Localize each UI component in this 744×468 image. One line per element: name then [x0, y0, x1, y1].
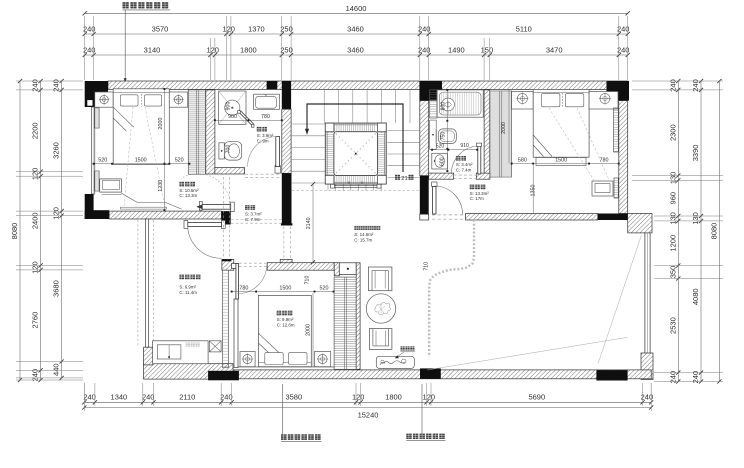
svg-text:2200: 2200	[31, 122, 40, 139]
svg-text:2110: 2110	[179, 393, 195, 402]
svg-text:3390: 3390	[691, 145, 700, 162]
svg-text:4080: 4080	[691, 288, 700, 305]
svg-text:2400: 2400	[31, 212, 40, 229]
svg-text:S: 9.9m²: S: 9.9m²	[277, 317, 294, 322]
svg-text:1200: 1200	[668, 235, 677, 252]
svg-text:350: 350	[668, 266, 677, 279]
svg-text:240: 240	[83, 393, 96, 402]
svg-text:21: 21	[401, 176, 407, 182]
svg-text:120: 120	[423, 393, 436, 402]
svg-text:C: 15.7m: C: 15.7m	[354, 238, 372, 243]
svg-text:C: 17m: C: 17m	[470, 196, 484, 201]
svg-text:1800: 1800	[385, 393, 402, 402]
svg-text:C: 7.9m: C: 7.9m	[245, 217, 261, 222]
svg-text:710: 710	[424, 262, 430, 271]
svg-text:1340: 1340	[111, 393, 128, 402]
svg-text:150: 150	[481, 45, 494, 54]
svg-text:520: 520	[436, 144, 445, 150]
svg-text:S: 3.4m²: S: 3.4m²	[456, 162, 473, 167]
svg-text:2000: 2000	[501, 122, 507, 134]
svg-text:240: 240	[220, 393, 233, 402]
svg-text:120: 120	[352, 393, 365, 402]
svg-text:2140: 2140	[306, 217, 312, 229]
svg-text:1500: 1500	[555, 157, 567, 163]
svg-text:2000: 2000	[306, 324, 312, 336]
svg-text:1230: 1230	[158, 180, 164, 192]
svg-text:520: 520	[98, 158, 107, 164]
svg-text:S: 3.7m²: S: 3.7m²	[245, 211, 262, 216]
svg-text:830: 830	[441, 102, 447, 111]
svg-text:440: 440	[52, 363, 61, 376]
svg-text:780: 780	[600, 157, 609, 163]
svg-text:1500: 1500	[135, 158, 147, 164]
svg-text:750: 750	[441, 132, 447, 141]
svg-text:710: 710	[305, 276, 311, 285]
svg-text:2000: 2000	[158, 118, 164, 130]
svg-text:3460: 3460	[347, 45, 364, 54]
svg-text:C: 13.3m: C: 13.3m	[179, 193, 197, 198]
svg-text:120: 120	[31, 168, 40, 181]
svg-text:130: 130	[668, 172, 677, 185]
svg-text:C: 12.6m: C: 12.6m	[277, 322, 295, 327]
svg-text:3470: 3470	[546, 45, 563, 54]
svg-text:780: 780	[239, 285, 248, 291]
svg-text:900: 900	[228, 114, 237, 120]
svg-text:3140: 3140	[144, 45, 161, 54]
svg-text:900: 900	[225, 102, 231, 111]
svg-text:S: 14.6m²: S: 14.6m²	[354, 232, 374, 237]
svg-text:120: 120	[52, 207, 61, 220]
svg-text:120: 120	[206, 45, 219, 54]
svg-text:3680: 3680	[52, 280, 61, 297]
svg-text:2530: 2530	[668, 317, 677, 334]
svg-text:960: 960	[668, 192, 677, 205]
svg-text:S: 3.9m²: S: 3.9m²	[257, 133, 274, 138]
svg-text:S: 6.9m²: S: 6.9m²	[179, 285, 196, 290]
svg-text:700: 700	[225, 145, 231, 154]
svg-text:240: 240	[142, 393, 155, 402]
svg-text:3580: 3580	[285, 393, 302, 402]
svg-text:130: 130	[691, 212, 700, 225]
svg-text:14600: 14600	[346, 4, 367, 13]
svg-text:3460: 3460	[347, 24, 364, 33]
svg-text:2760: 2760	[31, 312, 40, 329]
svg-text:3570: 3570	[152, 24, 169, 33]
svg-text:3260: 3260	[52, 142, 61, 159]
svg-text:8080: 8080	[10, 223, 19, 240]
svg-text:130: 130	[668, 212, 677, 225]
svg-text:1490: 1490	[448, 45, 465, 54]
svg-text:2300: 2300	[668, 124, 677, 141]
svg-text:1350: 1350	[531, 185, 537, 197]
svg-text:780: 780	[261, 114, 270, 120]
svg-text:15240: 15240	[358, 411, 379, 420]
svg-text:C: 7.4m: C: 7.4m	[456, 167, 472, 172]
svg-text:120: 120	[222, 24, 235, 33]
svg-text:C: 11.4m: C: 11.4m	[179, 290, 197, 295]
svg-text:120: 120	[31, 261, 40, 274]
svg-text:8080: 8080	[709, 223, 718, 240]
svg-text:600: 600	[440, 157, 446, 166]
svg-text:1800: 1800	[240, 45, 257, 54]
svg-text:1370: 1370	[248, 24, 265, 33]
svg-text:240: 240	[31, 369, 40, 382]
svg-text:S: 13.3m²: S: 13.3m²	[470, 191, 490, 196]
svg-text:5690: 5690	[528, 393, 545, 402]
svg-text:1500: 1500	[279, 285, 291, 291]
svg-text:5110: 5110	[516, 24, 532, 33]
svg-text:910: 910	[460, 143, 469, 149]
svg-text:C: 9m: C: 9m	[257, 138, 269, 143]
svg-text:520: 520	[175, 158, 184, 164]
svg-text:S: 10.6m²: S: 10.6m²	[179, 188, 199, 193]
svg-text:520: 520	[320, 285, 329, 291]
svg-text:580: 580	[518, 157, 527, 163]
